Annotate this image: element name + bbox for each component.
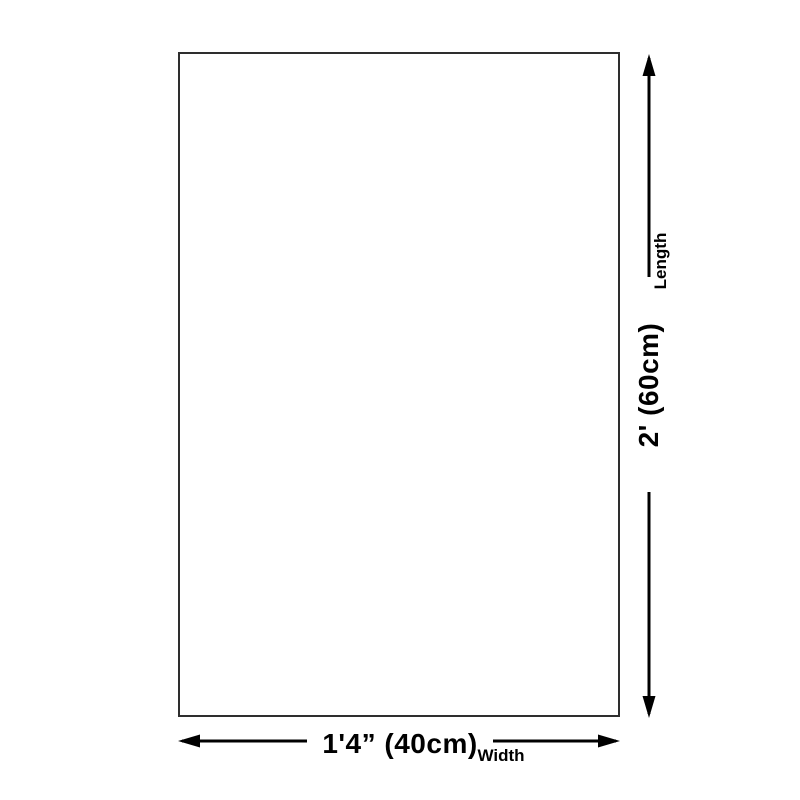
product-outline bbox=[178, 52, 620, 717]
length-label: Length bbox=[651, 233, 671, 290]
length-value: 2' (60cm) bbox=[633, 323, 665, 448]
width-label: Width bbox=[477, 746, 524, 766]
dimension-diagram: 2' (60cm) Length 1'4” (40cm) Width bbox=[0, 0, 800, 800]
width-value: 1'4” (40cm) bbox=[322, 728, 477, 760]
